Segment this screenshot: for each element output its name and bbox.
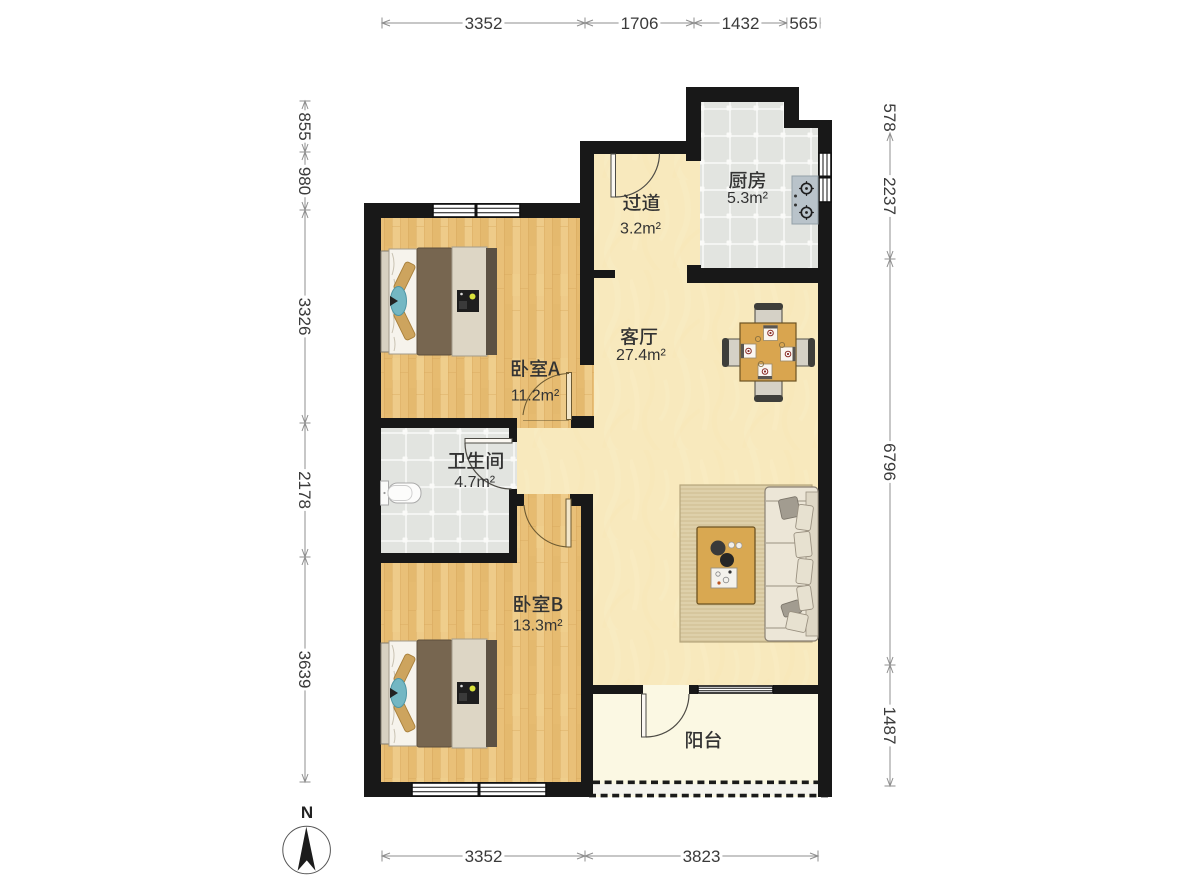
svg-text:N: N bbox=[301, 803, 313, 822]
svg-text:4.7m²: 4.7m² bbox=[454, 474, 496, 491]
svg-text:3352: 3352 bbox=[465, 847, 503, 866]
svg-text:5.3m²: 5.3m² bbox=[727, 190, 769, 207]
svg-text:3823: 3823 bbox=[683, 847, 721, 866]
svg-text:565: 565 bbox=[789, 14, 817, 33]
svg-text:578: 578 bbox=[880, 103, 899, 131]
svg-text:3.2m²: 3.2m² bbox=[620, 221, 662, 238]
svg-text:1487: 1487 bbox=[880, 707, 899, 745]
svg-text:1706: 1706 bbox=[621, 14, 659, 33]
svg-text:3639: 3639 bbox=[295, 651, 314, 689]
svg-text:3326: 3326 bbox=[295, 298, 314, 336]
svg-text:13.3m²: 13.3m² bbox=[513, 618, 563, 635]
svg-text:1432: 1432 bbox=[722, 14, 760, 33]
svg-text:2237: 2237 bbox=[880, 177, 899, 215]
svg-text:27.4m²: 27.4m² bbox=[616, 347, 666, 364]
svg-text:2178: 2178 bbox=[295, 471, 314, 509]
svg-text:6796: 6796 bbox=[880, 443, 899, 481]
svg-text:855: 855 bbox=[295, 112, 314, 140]
svg-text:11.2m²: 11.2m² bbox=[511, 388, 560, 405]
svg-text:3352: 3352 bbox=[465, 14, 503, 33]
svg-text:980: 980 bbox=[295, 167, 314, 195]
